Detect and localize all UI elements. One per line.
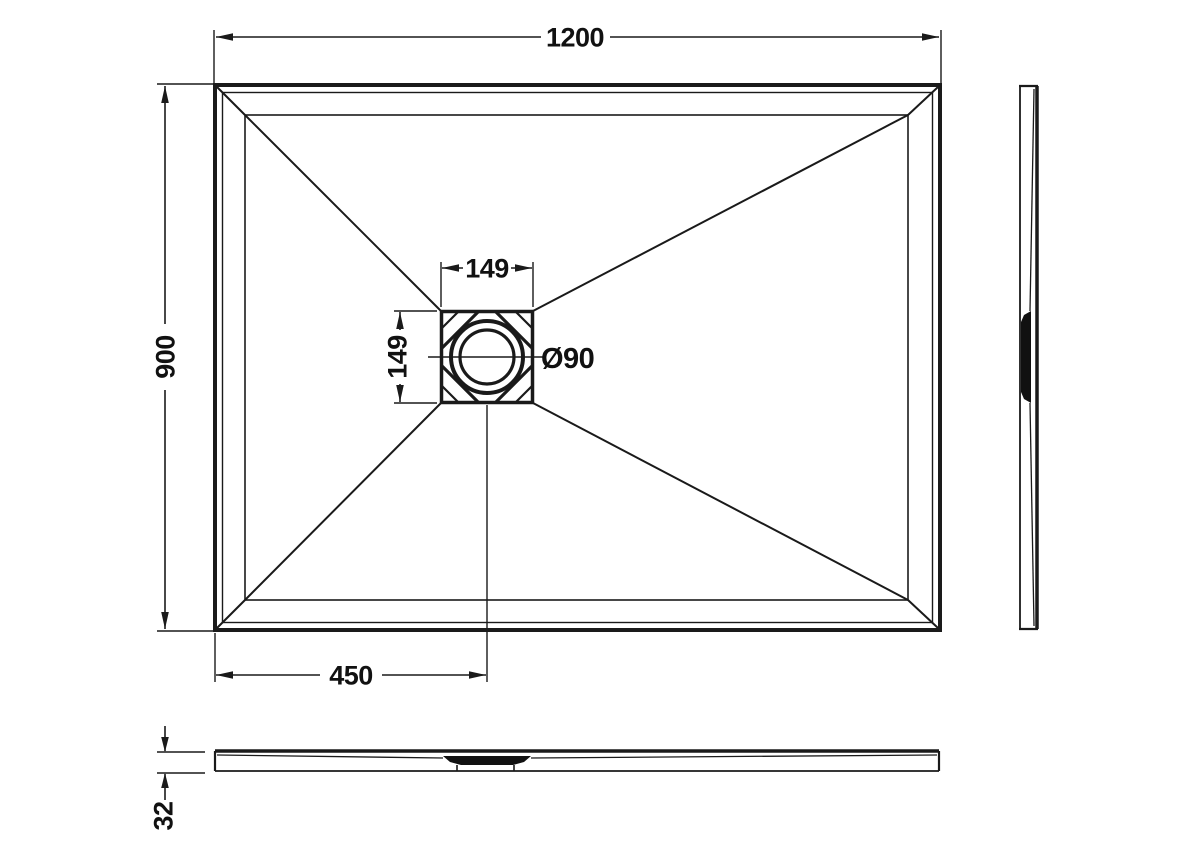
dim-text-overall-width: 1200 <box>546 22 604 52</box>
label-waste-diameter: Ø90 <box>541 343 594 375</box>
drawing-canvas: 1200 900 450 149 149 <box>0 0 1200 848</box>
technical-drawing-svg: 1200 900 450 149 149 <box>0 0 1200 848</box>
dim-text-drain-width: 149 <box>465 253 509 283</box>
dim-text-drain-offset: 450 <box>329 660 373 690</box>
profile-drain-recess <box>443 756 531 765</box>
dim-text-overall-depth: 900 <box>150 335 180 379</box>
dim-text-drain-height: 149 <box>382 335 412 379</box>
side-drain-recess <box>1021 311 1031 403</box>
dim-text-tray-thickness: 32 <box>148 801 178 830</box>
